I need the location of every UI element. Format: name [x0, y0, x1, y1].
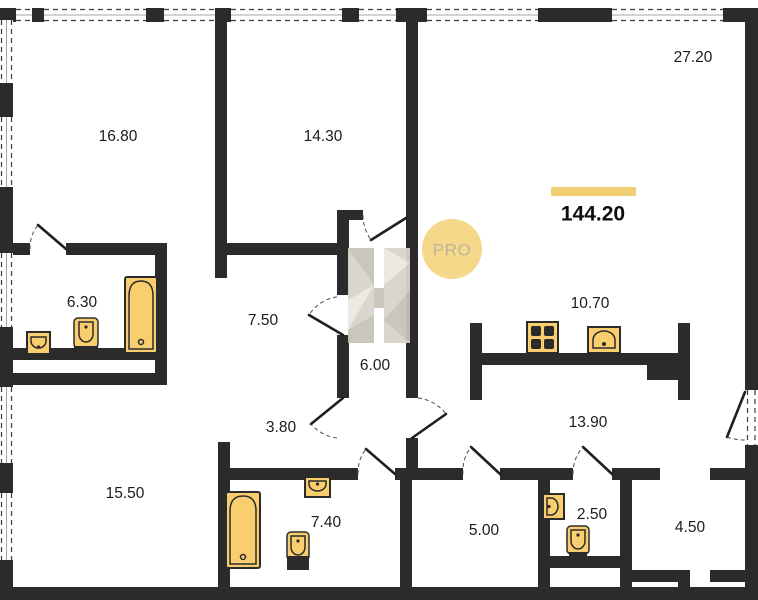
window — [612, 8, 723, 22]
room-label-15-50: 15.50 — [106, 485, 145, 502]
room-label-10-70: 10.70 — [571, 295, 610, 312]
window — [0, 117, 13, 187]
window — [359, 8, 396, 22]
door — [412, 398, 446, 438]
room-label-27-20: 27.20 — [674, 49, 713, 66]
sink-icon — [27, 332, 50, 354]
door-leaf — [727, 392, 745, 437]
window — [16, 8, 32, 22]
pro-badge: PRO — [422, 219, 482, 279]
toilet-icon — [567, 526, 589, 564]
stove-icon — [527, 322, 558, 353]
sink-icon — [588, 327, 620, 353]
room-label-14-30: 14.30 — [304, 128, 343, 145]
total-area-label: 144.20 — [561, 203, 625, 226]
door-swing-arc — [727, 437, 745, 440]
door — [573, 447, 612, 474]
balcony-door — [727, 390, 758, 445]
room-label-3-80: 3.80 — [266, 419, 297, 436]
window — [231, 8, 342, 22]
window — [0, 493, 13, 560]
room-label-16-80: 16.80 — [99, 128, 138, 145]
toilet-icon — [74, 318, 98, 358]
door — [30, 225, 66, 249]
sink-icon — [543, 494, 564, 519]
floor-plan-drawing: 16.80 14.30 27.20 6.30 7.50 6.00 10.70 3… — [0, 0, 758, 600]
toilet-icon — [287, 532, 309, 570]
total-area: 144.20 — [551, 187, 636, 226]
room-label-6-30: 6.30 — [67, 294, 98, 311]
room-label-5-00: 5.00 — [469, 522, 500, 539]
sink-icon — [305, 477, 330, 497]
door — [309, 297, 343, 335]
room-label-7-40: 7.40 — [311, 514, 342, 531]
window — [44, 8, 146, 22]
door — [463, 447, 500, 474]
room-label-13-90: 13.90 — [569, 414, 608, 431]
total-area-underline — [551, 187, 636, 196]
bathtub-icon — [226, 492, 260, 568]
door — [363, 215, 406, 240]
window — [0, 20, 13, 83]
door — [311, 398, 343, 438]
room-label-7-50: 7.50 — [248, 312, 279, 329]
window — [164, 8, 215, 22]
room-label-6-00: 6.00 — [360, 357, 391, 374]
pro-badge-label: PRO — [433, 240, 471, 259]
window — [0, 387, 13, 463]
floor-plan: 16.80 14.30 27.20 6.30 7.50 6.00 10.70 3… — [0, 0, 758, 600]
door — [358, 449, 395, 474]
window — [427, 8, 538, 22]
window — [0, 253, 13, 327]
room-label-2-50: 2.50 — [577, 506, 608, 523]
bathtub-icon — [125, 277, 157, 353]
windows-top — [16, 8, 723, 22]
room-label-4-50: 4.50 — [675, 519, 706, 536]
h-logo-watermark — [348, 248, 410, 343]
